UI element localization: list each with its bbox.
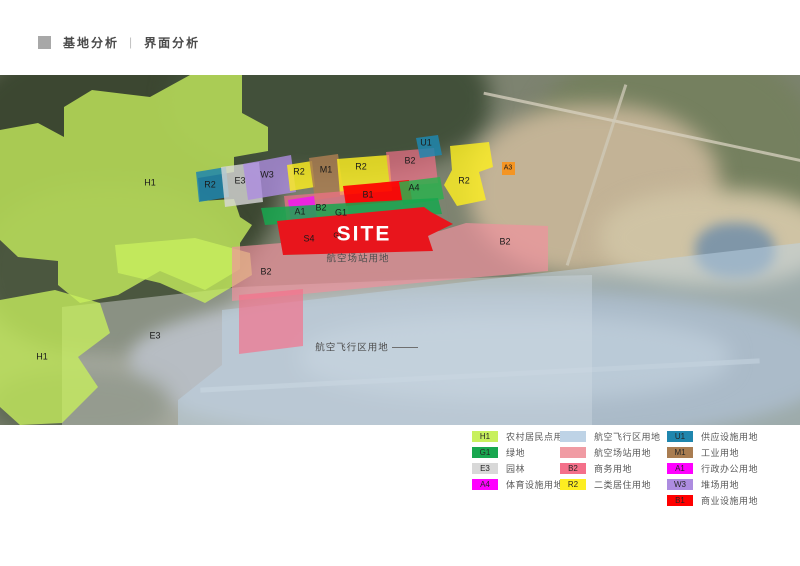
zone-label-h1-lower: H1 — [36, 353, 48, 362]
legend-column-2: 航空飞行区用地 航空场站用地 B2 商务用地 R2 二类居住用地 — [560, 431, 661, 490]
page-title-primary: 基地分析 — [63, 34, 119, 51]
legend-row-a1: A1 行政办公用地 — [667, 463, 758, 474]
legend-code-g1: G1 — [480, 447, 491, 458]
site-label: SITE — [337, 224, 392, 245]
legend-column-1: H1 农村居民点用地 G1 绿地 E3 园林 A4 体育设施用地 — [472, 431, 573, 490]
airfield-band-label: 航空飞行区用地 — [315, 343, 389, 353]
legend-code-m1: M1 — [674, 447, 685, 458]
legend-row-e3: E3 园林 — [472, 463, 573, 474]
title-divider: | — [129, 35, 134, 49]
leader-line — [392, 347, 418, 348]
legend-swatch-b1: B1 — [667, 495, 693, 506]
legend-label-airfield: 航空飞行区用地 — [594, 430, 661, 443]
legend-swatch-r2: R2 — [560, 479, 586, 490]
legend-code-w3: W3 — [674, 479, 686, 490]
zone-label-r2-right: R2 — [458, 177, 470, 186]
legend-swatch-airfield — [560, 431, 586, 442]
zone-label-s4: S4 — [303, 235, 314, 244]
legend-swatch-a4: A4 — [472, 479, 498, 490]
legend-label-station: 航空场站用地 — [594, 446, 651, 459]
legend-swatch-u1: U1 — [667, 431, 693, 442]
legend-label-a1: 行政办公用地 — [701, 462, 758, 475]
legend-swatch-e3: E3 — [472, 463, 498, 474]
zone-label-b2-vertical: B2 — [260, 268, 271, 277]
zone-label-a1: A1 — [294, 208, 305, 217]
legend-row-b2: B2 商务用地 — [560, 463, 661, 474]
legend-code-b1: B1 — [675, 495, 685, 506]
legend-label-w3: 堆场用地 — [701, 478, 739, 491]
zone-label-u1: U1 — [420, 139, 432, 148]
zone-label-w3: W3 — [260, 171, 274, 180]
legend-swatch-w3: W3 — [667, 479, 693, 490]
legend-row-station: 航空场站用地 — [560, 447, 661, 458]
station-band-label: 航空场站用地 — [326, 254, 389, 264]
zone-label-a4: A4 — [408, 184, 419, 193]
site-analysis-map: H1 H1 E3 B2 R2 E3 W3 R2 M1 R2 B2 U1 R2 A… — [0, 75, 800, 425]
legend-row-g1: G1 绿地 — [472, 447, 573, 458]
zone-label-r2-mid: R2 — [355, 163, 367, 172]
zone-label-r2-small: R2 — [293, 168, 305, 177]
legend-code-a1: A1 — [675, 463, 685, 474]
legend-row-u1: U1 供应设施用地 — [667, 431, 758, 442]
legend-label-a4: 体育设施用地 — [506, 478, 563, 491]
legend-code-u1: U1 — [675, 431, 685, 442]
legend-row-airfield: 航空飞行区用地 — [560, 431, 661, 442]
zone-label-r2-teal: R2 — [204, 181, 216, 190]
legend-label-g1: 绿地 — [506, 446, 525, 459]
legend-column-3: U1 供应设施用地 M1 工业用地 A1 行政办公用地 W3 堆场用地 B1 商… — [667, 431, 758, 506]
legend-swatch-h1: H1 — [472, 431, 498, 442]
zone-label-e3-area: E3 — [149, 332, 160, 341]
legend-code-a4: A4 — [480, 479, 490, 490]
legend-label-r2: 二类居住用地 — [594, 478, 651, 491]
zone-label-e3-parcel: E3 — [234, 177, 245, 186]
legend-label-m1: 工业用地 — [701, 446, 739, 459]
zone-label-b2-mid: B2 — [315, 204, 326, 213]
legend-code-r2: R2 — [568, 479, 578, 490]
zone-label-a3: A3 — [504, 165, 513, 172]
page-title-secondary: 界面分析 — [144, 34, 200, 51]
legend-swatch-b2: B2 — [560, 463, 586, 474]
legend-swatch-m1: M1 — [667, 447, 693, 458]
legend-swatch-station — [560, 447, 586, 458]
page-header: 基地分析 | 界面分析 — [38, 34, 200, 50]
zone-label-b2-station: B2 — [499, 238, 510, 247]
square-bullet-icon — [38, 36, 51, 49]
legend-swatch-g1: G1 — [472, 447, 498, 458]
legend-row-r2: R2 二类居住用地 — [560, 479, 661, 490]
legend-row-b1: B1 商业设施用地 — [667, 495, 758, 506]
legend-row-w3: W3 堆场用地 — [667, 479, 758, 490]
zone-label-m1: M1 — [320, 166, 333, 175]
legend-row-m1: M1 工业用地 — [667, 447, 758, 458]
legend-code-e3: E3 — [480, 463, 490, 474]
legend-row-a4: A4 体育设施用地 — [472, 479, 573, 490]
legend-swatch-a1: A1 — [667, 463, 693, 474]
zone-label-h1-main: H1 — [144, 179, 156, 188]
legend-label-e3: 园林 — [506, 462, 525, 475]
legend-code-h1: H1 — [480, 431, 490, 442]
legend-label-b2: 商务用地 — [594, 462, 632, 475]
legend-label-u1: 供应设施用地 — [701, 430, 758, 443]
legend-code-b2: B2 — [568, 463, 578, 474]
zone-label-b2-top: B2 — [404, 157, 415, 166]
zone-label-b1: B1 — [362, 191, 373, 200]
legend-label-b1: 商业设施用地 — [701, 494, 758, 507]
legend-row-h1: H1 农村居民点用地 — [472, 431, 573, 442]
zone-label-g1-strip: G1 — [335, 209, 347, 218]
